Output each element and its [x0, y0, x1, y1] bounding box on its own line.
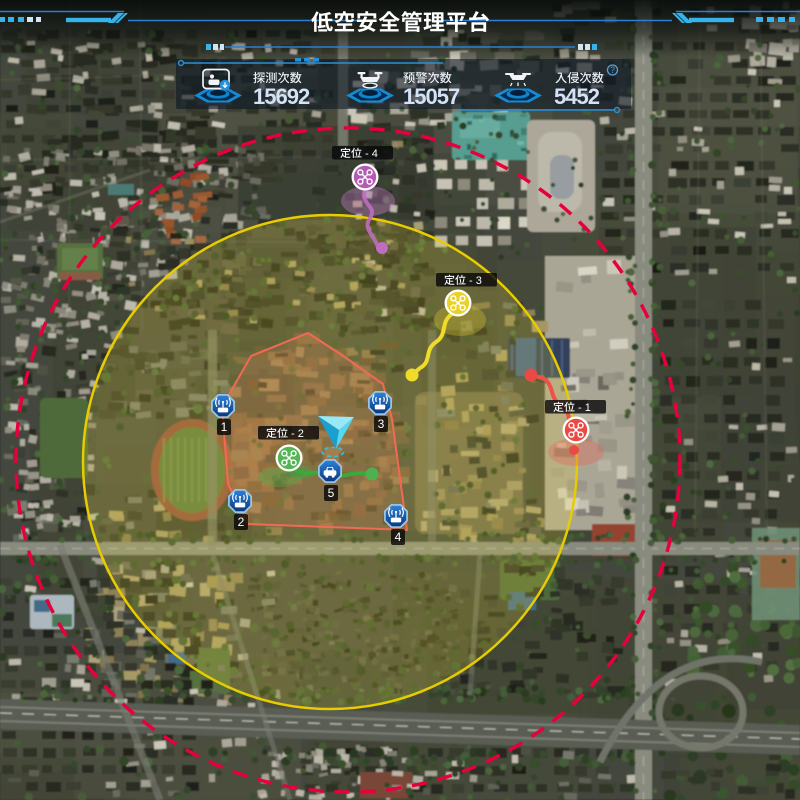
- svg-text:- 2: - 2: [291, 428, 304, 440]
- svg-text:- 1: - 1: [578, 402, 591, 414]
- svg-text:- 3: - 3: [469, 275, 482, 287]
- svg-text:- 4: - 4: [365, 148, 378, 160]
